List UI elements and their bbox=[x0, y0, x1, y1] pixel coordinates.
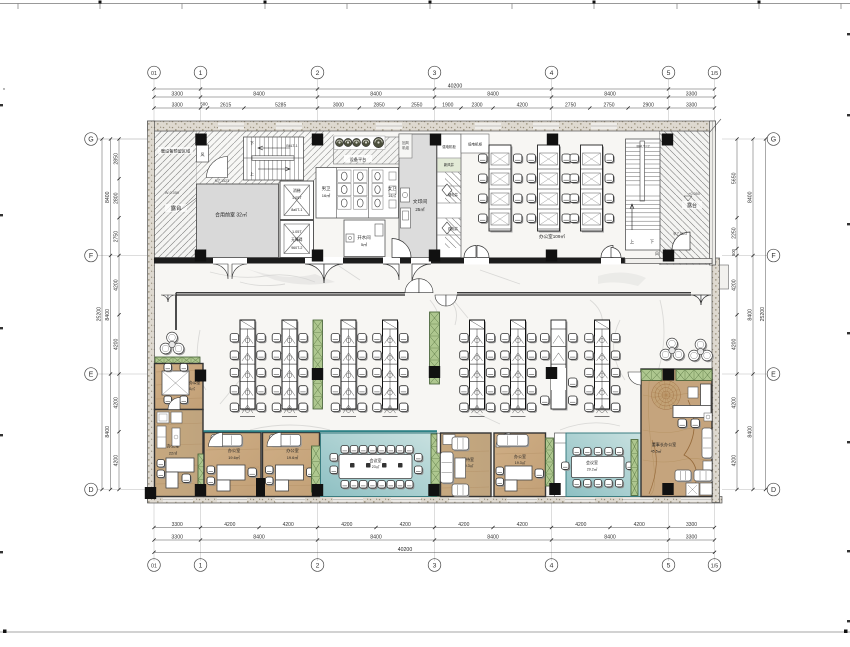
svg-text:45.5㎡: 45.5㎡ bbox=[651, 449, 662, 454]
svg-text:8400: 8400 bbox=[370, 92, 382, 98]
svg-text:4: 4 bbox=[550, 70, 554, 77]
svg-text:E: E bbox=[771, 371, 776, 378]
svg-text:5: 5 bbox=[667, 562, 671, 569]
svg-text:4200: 4200 bbox=[114, 455, 120, 467]
svg-text:19.3㎡: 19.3㎡ bbox=[515, 460, 526, 465]
svg-text:1.05T: 1.05T bbox=[292, 196, 302, 200]
svg-text:3: 3 bbox=[433, 70, 437, 77]
svg-text:4200: 4200 bbox=[400, 522, 411, 528]
svg-text:董事长办公室: 董事长办公室 bbox=[652, 441, 677, 447]
svg-text:2615: 2615 bbox=[220, 102, 231, 108]
svg-text:强电井: 强电井 bbox=[448, 226, 459, 231]
svg-text:3000: 3000 bbox=[333, 102, 344, 108]
svg-text:风: 风 bbox=[201, 152, 205, 157]
svg-text:无障碍: 无障碍 bbox=[291, 237, 303, 242]
svg-text:8a0T-1: 8a0T-1 bbox=[291, 208, 302, 212]
svg-text:会议室: 会议室 bbox=[370, 457, 382, 463]
svg-text:露台: 露台 bbox=[687, 202, 697, 209]
svg-text:4200: 4200 bbox=[224, 522, 235, 528]
svg-text:25200: 25200 bbox=[760, 307, 766, 322]
svg-text:D: D bbox=[771, 487, 776, 494]
svg-text:F: F bbox=[771, 253, 775, 260]
svg-text:25㎡: 25㎡ bbox=[415, 206, 425, 212]
svg-text:烟电井: 烟电井 bbox=[448, 192, 459, 197]
svg-text:22㎡: 22㎡ bbox=[169, 451, 177, 456]
svg-text:机组: 机组 bbox=[402, 145, 409, 150]
svg-text:4200: 4200 bbox=[341, 522, 352, 528]
svg-text:风: 风 bbox=[655, 252, 659, 256]
svg-text:4200: 4200 bbox=[517, 102, 528, 108]
svg-text:16㎡: 16㎡ bbox=[322, 192, 330, 198]
svg-text:8400: 8400 bbox=[604, 92, 616, 98]
svg-text:上: 上 bbox=[250, 171, 254, 177]
svg-text:8400: 8400 bbox=[748, 191, 754, 203]
svg-text:8400: 8400 bbox=[253, 534, 265, 540]
svg-text:4200: 4200 bbox=[114, 339, 120, 351]
svg-text:8400: 8400 bbox=[748, 426, 754, 438]
svg-text:4200: 4200 bbox=[458, 522, 469, 528]
svg-text:会议室: 会议室 bbox=[586, 459, 598, 465]
svg-text:G: G bbox=[771, 136, 776, 143]
svg-text:8400: 8400 bbox=[253, 92, 265, 98]
svg-text:W-0.050: W-0.050 bbox=[165, 191, 179, 195]
svg-text:暖设备预留区域: 暖设备预留区域 bbox=[161, 148, 191, 155]
svg-text:2250: 2250 bbox=[732, 227, 738, 239]
svg-text:D: D bbox=[88, 487, 93, 494]
svg-text:5㎡: 5㎡ bbox=[361, 241, 367, 247]
svg-text:8400: 8400 bbox=[487, 92, 499, 98]
svg-text:23㎡: 23㎡ bbox=[372, 464, 380, 469]
svg-text:办公室109㎡: 办公室109㎡ bbox=[539, 233, 565, 240]
svg-text:8400: 8400 bbox=[370, 534, 382, 540]
svg-text:4200: 4200 bbox=[732, 339, 738, 351]
svg-text:新风井: 新风井 bbox=[444, 162, 455, 167]
svg-text:设备平台: 设备平台 bbox=[350, 156, 367, 163]
svg-text:上: 上 bbox=[630, 238, 634, 244]
svg-text:合用前室 32㎡: 合用前室 32㎡ bbox=[215, 212, 247, 219]
svg-text:3: 3 bbox=[433, 562, 437, 569]
svg-text:40200: 40200 bbox=[448, 83, 463, 89]
svg-text:强电机柜: 强电机柜 bbox=[442, 144, 456, 149]
svg-text:29.2㎡: 29.2㎡ bbox=[587, 467, 598, 472]
svg-text:1/5: 1/5 bbox=[711, 71, 719, 77]
svg-text:B6LT=2: B6LT=2 bbox=[636, 145, 649, 149]
svg-text:消梯: 消梯 bbox=[293, 188, 301, 193]
svg-text:3300: 3300 bbox=[171, 92, 183, 98]
svg-text:4200: 4200 bbox=[732, 455, 738, 467]
svg-text:办公室: 办公室 bbox=[286, 447, 299, 454]
svg-text:x: x bbox=[3, 86, 5, 91]
svg-text:N乙1523: N乙1523 bbox=[215, 178, 229, 183]
svg-text:5: 5 bbox=[667, 70, 671, 77]
svg-text:2300: 2300 bbox=[471, 102, 482, 108]
svg-text:5650: 5650 bbox=[732, 172, 738, 184]
svg-text:办公室: 办公室 bbox=[514, 453, 526, 459]
svg-text:2550: 2550 bbox=[411, 102, 422, 108]
svg-text:01: 01 bbox=[151, 71, 157, 77]
svg-text:下: 下 bbox=[250, 141, 254, 146]
svg-text:女卫: 女卫 bbox=[388, 185, 396, 191]
svg-text:1.05T: 1.05T bbox=[292, 230, 302, 234]
svg-text:文印间: 文印间 bbox=[413, 198, 428, 205]
svg-text:3300: 3300 bbox=[172, 102, 183, 108]
svg-text:5285: 5285 bbox=[275, 102, 286, 108]
svg-text:8400: 8400 bbox=[105, 191, 111, 203]
svg-text:4200: 4200 bbox=[114, 279, 120, 291]
svg-text:19.6㎡: 19.6㎡ bbox=[228, 455, 240, 460]
svg-text:3300: 3300 bbox=[172, 522, 183, 528]
svg-text:2800: 2800 bbox=[114, 192, 120, 204]
svg-text:2750: 2750 bbox=[603, 102, 614, 108]
svg-text:500: 500 bbox=[731, 248, 736, 256]
svg-text:2750: 2750 bbox=[114, 231, 120, 243]
svg-text:1: 1 bbox=[199, 70, 203, 77]
svg-text:25200: 25200 bbox=[97, 307, 103, 322]
svg-text:3300: 3300 bbox=[686, 522, 697, 528]
svg-text:2: 2 bbox=[316, 70, 320, 77]
svg-text:8400: 8400 bbox=[604, 534, 616, 540]
svg-text:01: 01 bbox=[151, 563, 157, 569]
svg-text:F: F bbox=[89, 253, 93, 260]
svg-text:2900: 2900 bbox=[643, 102, 654, 108]
svg-text:办公室: 办公室 bbox=[228, 447, 241, 454]
svg-text:3300: 3300 bbox=[686, 102, 697, 108]
svg-text:8400: 8400 bbox=[105, 426, 111, 438]
svg-text:1/5: 1/5 bbox=[711, 563, 719, 569]
svg-text:8400: 8400 bbox=[748, 309, 754, 321]
svg-text:4200: 4200 bbox=[732, 397, 738, 409]
svg-text:3300: 3300 bbox=[686, 92, 698, 98]
svg-text:3300: 3300 bbox=[171, 534, 183, 540]
svg-text:4: 4 bbox=[550, 562, 554, 569]
svg-text:960T-2: 960T-2 bbox=[291, 246, 302, 250]
svg-text:甲乙1523: 甲乙1523 bbox=[673, 231, 687, 236]
svg-text:19.6㎡: 19.6㎡ bbox=[287, 455, 299, 460]
svg-text:1900: 1900 bbox=[442, 102, 453, 108]
svg-text:14㎡: 14㎡ bbox=[388, 193, 396, 198]
svg-text:2850: 2850 bbox=[114, 153, 120, 165]
svg-text:1: 1 bbox=[199, 562, 203, 569]
svg-text:4200: 4200 bbox=[283, 522, 294, 528]
svg-text:E: E bbox=[89, 371, 94, 378]
svg-text:4200: 4200 bbox=[114, 397, 120, 409]
svg-text:G: G bbox=[88, 136, 93, 143]
svg-text:8400: 8400 bbox=[105, 309, 111, 321]
svg-text:500: 500 bbox=[200, 101, 208, 106]
svg-text:4200: 4200 bbox=[575, 522, 586, 528]
svg-text:4200: 4200 bbox=[732, 279, 738, 291]
svg-text:低电机柜: 低电机柜 bbox=[468, 142, 483, 147]
svg-text:40200: 40200 bbox=[398, 547, 413, 553]
svg-text:B6LT-1: B6LT-1 bbox=[286, 144, 297, 148]
svg-text:4200: 4200 bbox=[517, 522, 528, 528]
svg-text:回风: 回风 bbox=[402, 141, 409, 145]
svg-text:+0.050: +0.050 bbox=[688, 192, 700, 196]
svg-text:2750: 2750 bbox=[565, 102, 576, 108]
svg-text:开水间: 开水间 bbox=[357, 234, 370, 241]
svg-text:2: 2 bbox=[316, 562, 320, 569]
svg-text:3300: 3300 bbox=[686, 534, 698, 540]
svg-text:8400: 8400 bbox=[487, 534, 499, 540]
svg-text:2850: 2850 bbox=[374, 102, 385, 108]
svg-text:4200: 4200 bbox=[634, 522, 645, 528]
